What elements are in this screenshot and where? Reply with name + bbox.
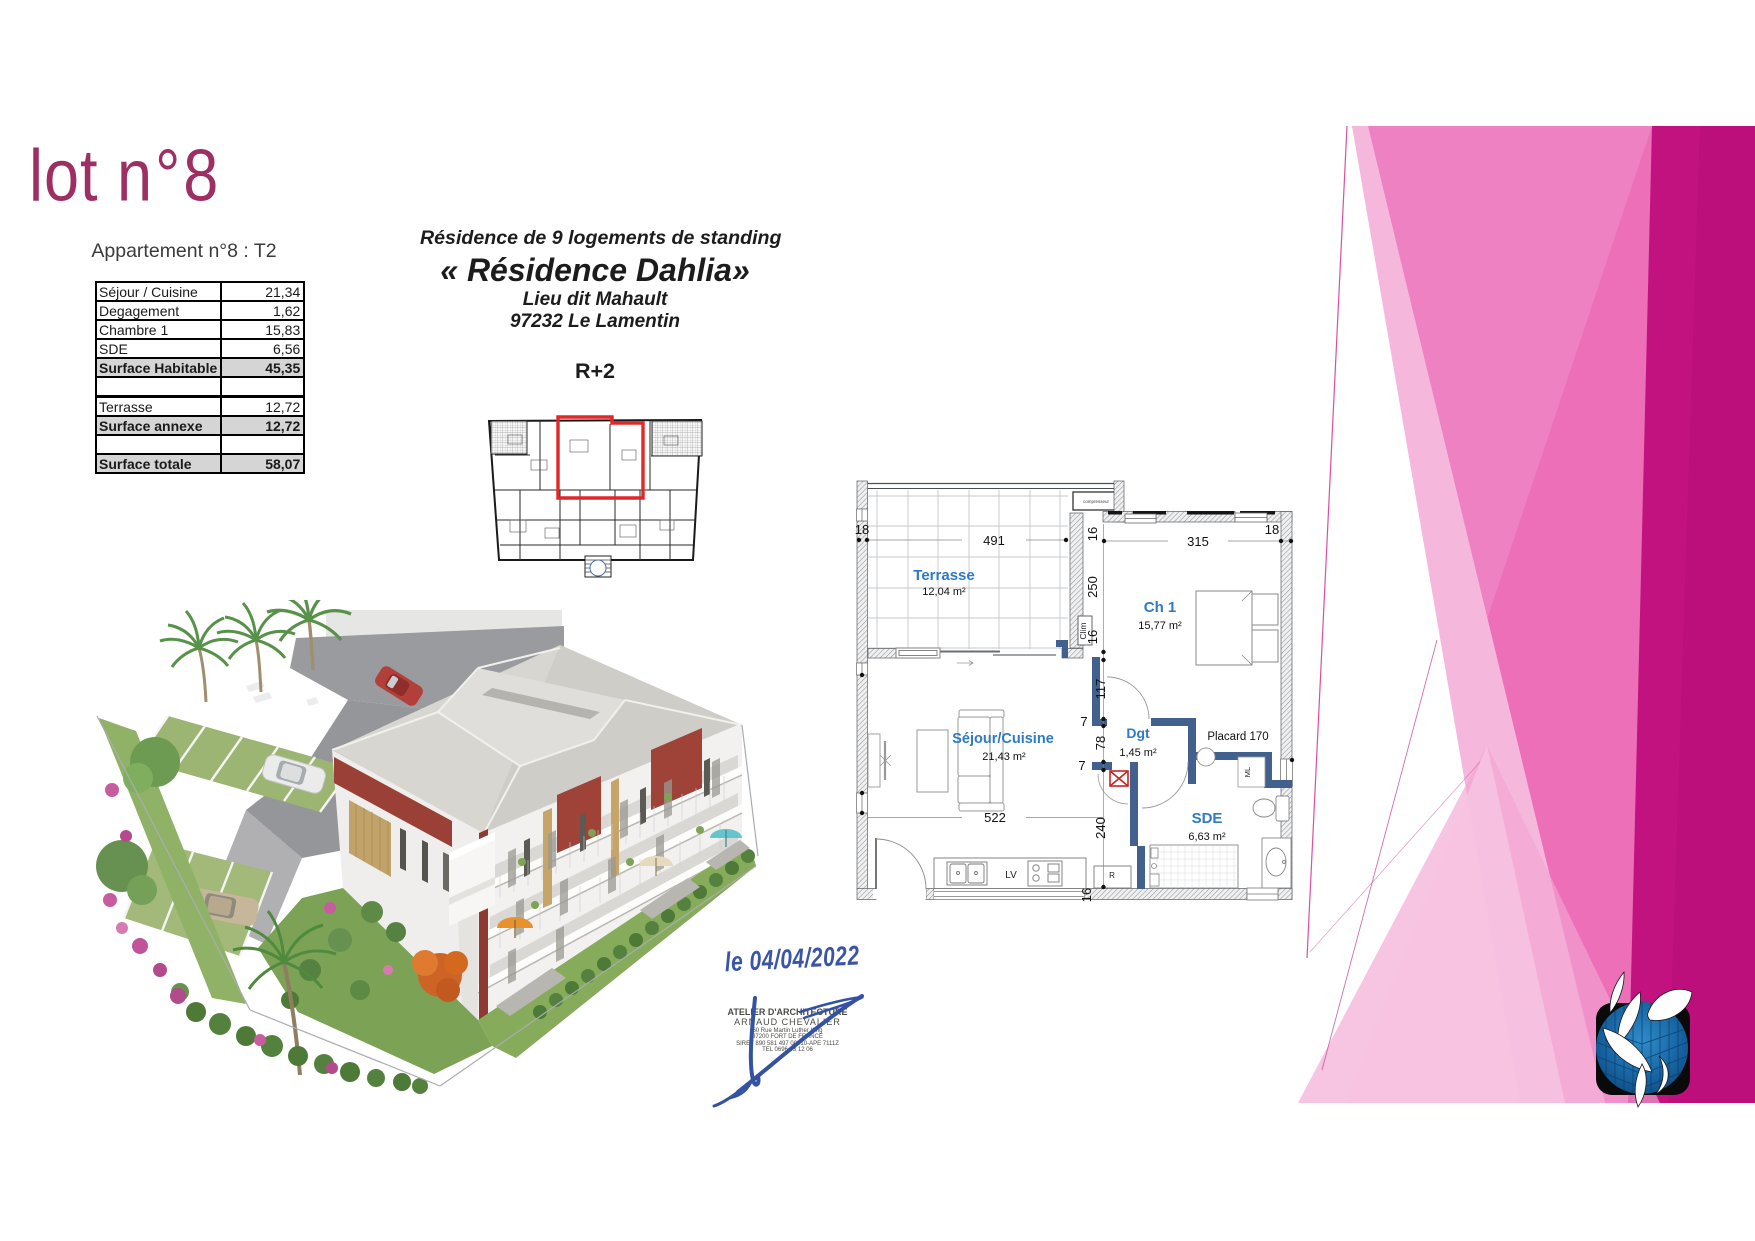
svg-text:SDE: SDE [1192, 810, 1223, 827]
svg-text:16: 16 [1079, 888, 1094, 902]
svg-text:7: 7 [1078, 758, 1085, 773]
svg-text:Séjour/Cuisine: Séjour/Cuisine [952, 731, 1054, 747]
svg-text:12,04 m²: 12,04 m² [922, 586, 966, 598]
svg-text:250: 250 [1085, 576, 1100, 598]
svg-text:Placard 170: Placard 170 [1207, 731, 1268, 743]
svg-text:315: 315 [1187, 534, 1209, 549]
svg-text:18: 18 [1265, 522, 1279, 537]
svg-text:7: 7 [1080, 714, 1087, 729]
svg-text:78: 78 [1093, 736, 1108, 750]
svg-text:1,45 m²: 1,45 m² [1119, 747, 1157, 759]
svg-text:15,77 m²: 15,77 m² [1138, 620, 1182, 632]
svg-text:6,63 m²: 6,63 m² [1188, 831, 1226, 843]
svg-text:16: 16 [1085, 630, 1100, 644]
svg-text:240: 240 [1093, 817, 1108, 839]
svg-text:ML: ML [1243, 767, 1252, 777]
svg-text:Terrasse: Terrasse [913, 567, 974, 584]
svg-text:18: 18 [855, 522, 869, 537]
svg-text:21,43 m²: 21,43 m² [982, 751, 1026, 763]
svg-text:16: 16 [1085, 527, 1100, 541]
svg-text:Dgt: Dgt [1126, 725, 1150, 741]
svg-text:491: 491 [983, 533, 1005, 548]
svg-text:LV: LV [1005, 870, 1017, 881]
svg-text:Ch 1: Ch 1 [1144, 599, 1177, 616]
svg-text:compresseur: compresseur [1083, 499, 1110, 504]
svg-text:522: 522 [984, 810, 1006, 825]
svg-text:R: R [1109, 871, 1115, 880]
svg-text:117: 117 [1093, 679, 1108, 700]
